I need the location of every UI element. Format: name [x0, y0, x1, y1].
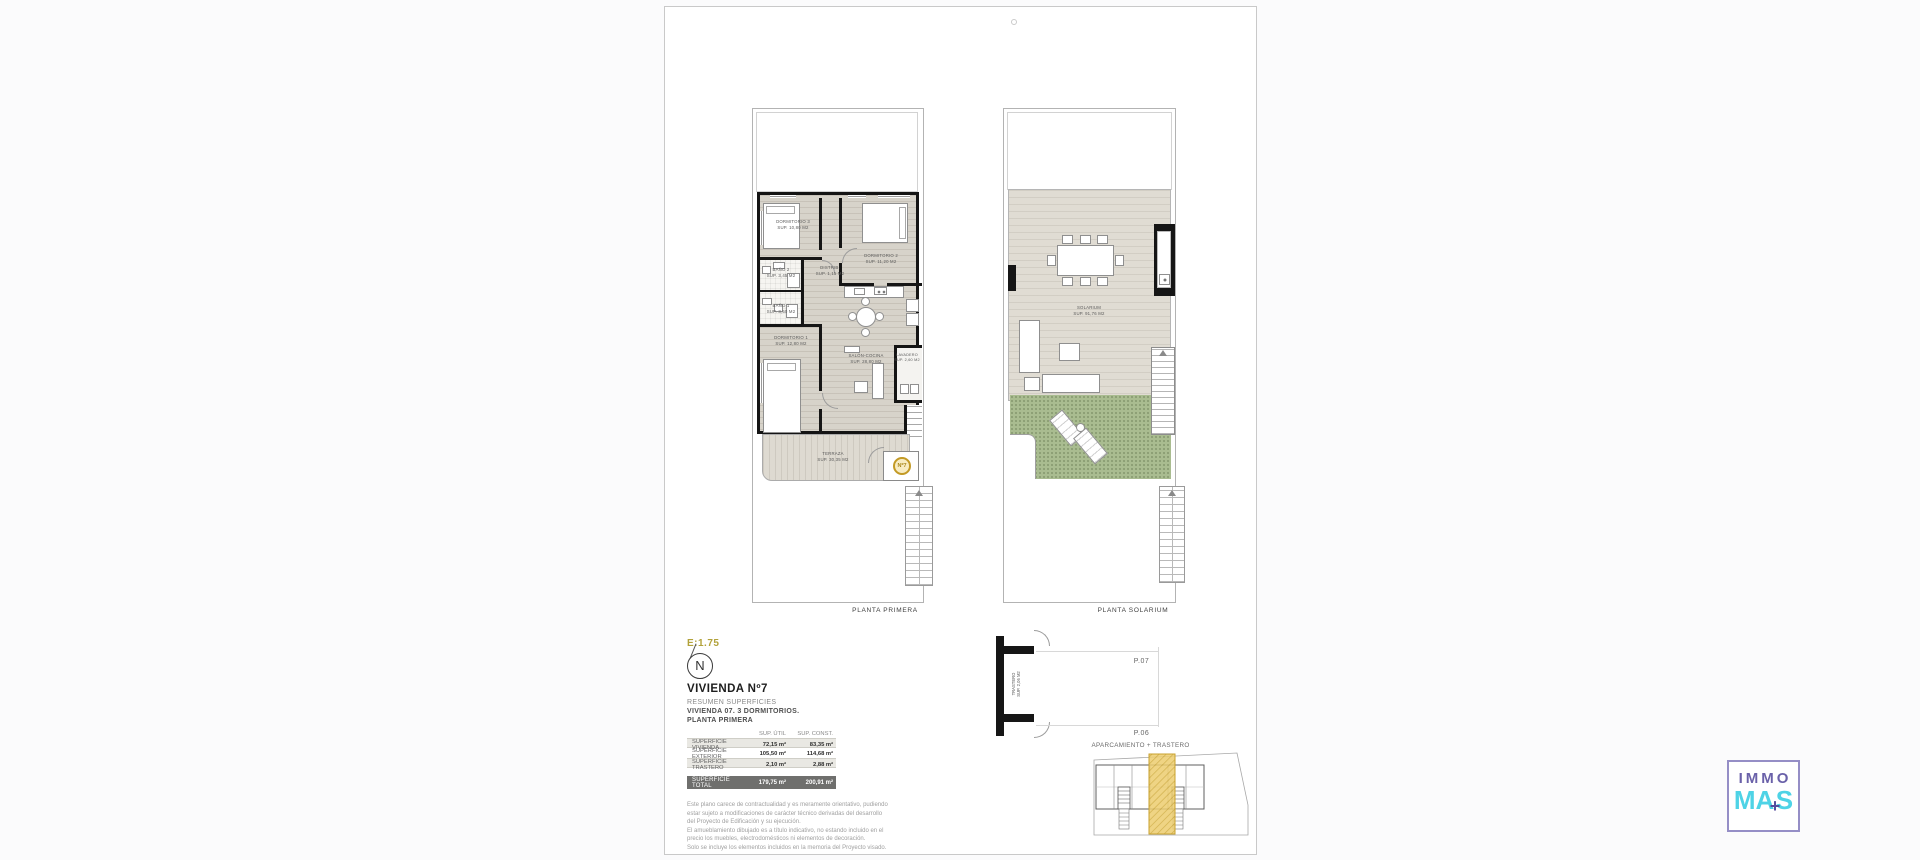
table-header: SUP. ÚTIL SUP. CONST.	[687, 729, 836, 738]
chair	[1080, 277, 1091, 286]
immomas-logo: IMMO MA+S	[1727, 760, 1800, 832]
apartment-floor: DORMITORIO 3SUP. 10,80 M2 DORMITORIO 2SU…	[757, 192, 919, 434]
room-label-dormitorio-2: DORMITORIO 2SUP. 11,20 M2	[852, 253, 910, 264]
hob	[874, 287, 887, 295]
room-label-dormitorio-1: DORMITORIO 1SUP. 12,80 M2	[764, 335, 818, 346]
oven	[906, 313, 919, 326]
chair	[1080, 235, 1091, 244]
logo-plus-icon: +	[1770, 793, 1781, 819]
page-mark	[1011, 19, 1017, 25]
door-arc	[822, 393, 838, 409]
chair	[861, 297, 870, 306]
surface-table: SUP. ÚTIL SUP. CONST. SUPERFICIE VIVIEND…	[687, 729, 836, 789]
room-label-salon-cocina: SALÓN-COCINASUP. 28,80 M2	[838, 353, 894, 364]
stair-shaft	[1151, 347, 1175, 435]
chair	[1115, 255, 1124, 266]
chair	[1047, 255, 1056, 266]
chair	[875, 312, 884, 321]
tv-unit	[844, 346, 860, 353]
up-arrow-icon	[1168, 490, 1176, 496]
room-label-terraza: TERRAZASUP. 30,35 M2	[795, 451, 871, 462]
chair	[848, 312, 857, 321]
fridge	[906, 299, 919, 312]
bed	[763, 359, 801, 433]
bed	[862, 203, 908, 243]
plan-title-solarium: PLANTA SOLARIUM	[1068, 607, 1198, 614]
exterior-stair	[1159, 486, 1185, 583]
window	[878, 195, 910, 198]
chair	[1097, 277, 1108, 286]
wall	[760, 290, 801, 292]
scale-label: E:1.75	[687, 638, 719, 649]
summary-subtitle: RESUMEN SUPERFICIES	[687, 699, 776, 706]
site-key-plan	[1091, 751, 1251, 839]
room-label-trastero: TRASTEROSUP. 2,06 M2	[1011, 661, 1023, 707]
wall	[819, 409, 822, 437]
table-row: SUPERFICIE VIVIENDA 72,15 m² 83,35 m²	[687, 738, 836, 748]
washer	[900, 384, 909, 394]
storage-wall	[996, 636, 1004, 736]
summary-floor-line: PLANTA PRIMERA	[687, 717, 753, 724]
parking-line	[1036, 651, 1159, 652]
col-sup-const: SUP. CONST.	[789, 731, 836, 737]
sofa	[1019, 320, 1040, 373]
room-label-dormitorio-3: DORMITORIO 3SUP. 10,80 M2	[768, 219, 818, 230]
disclaimer-text: Este plano carece de contractualidad y e…	[687, 801, 927, 852]
table-row: SUPERFICIE EXTERIOR 105,50 m² 114,68 m²	[687, 748, 836, 758]
window	[770, 195, 796, 198]
exterior-stair	[905, 486, 933, 586]
dining-table	[856, 307, 876, 327]
chair	[1062, 277, 1073, 286]
roof-outline	[756, 112, 918, 192]
interior-stair	[904, 405, 922, 437]
storage-wall	[1004, 646, 1034, 654]
wall	[819, 198, 822, 250]
chair	[861, 328, 870, 337]
room-label-bano-2: BAÑO 2SUP. 3,45 M2	[761, 267, 801, 278]
bbq	[1159, 274, 1170, 285]
wall	[1008, 265, 1016, 291]
window	[848, 195, 866, 198]
wall	[819, 327, 822, 391]
sofa	[872, 363, 884, 399]
plan-sheet-page: DORMITORIO 3SUP. 10,80 M2 DORMITORIO 2SU…	[664, 6, 1257, 855]
door-arc	[1034, 630, 1050, 646]
room-label-solarium: SOLARIUMSUP. 91,76 M2	[1056, 305, 1122, 316]
coffee-table	[1059, 343, 1080, 361]
north-compass-icon: N	[687, 653, 713, 679]
highlighted-unit-band	[1149, 754, 1175, 834]
table-total-row: SUPERFICIE TOTAL 179,75 m² 200,91 m²	[687, 776, 836, 789]
logo-mas-text: MA+S	[1729, 787, 1798, 816]
planta-primera-plan: DORMITORIO 3SUP. 10,80 M2 DORMITORIO 2SU…	[752, 108, 924, 603]
parking-space-p06: P.06	[1119, 730, 1164, 737]
planta-solarium-plan: SOLARIUMSUP. 91,76 M2	[1003, 108, 1176, 603]
kitchen-sink	[854, 288, 865, 295]
dryer	[910, 384, 919, 394]
up-arrow-icon	[1159, 350, 1167, 356]
roof-outline	[1007, 112, 1172, 190]
chair	[1097, 235, 1108, 244]
page-title: VIVIENDA Nº7	[687, 683, 768, 695]
round-table	[1076, 423, 1085, 432]
armchair	[854, 381, 868, 393]
summary-unit-line: VIVIENDA 07. 3 DORMITORIOS.	[687, 708, 799, 715]
storage-wall	[1004, 714, 1034, 722]
walkway-notch	[1010, 434, 1036, 479]
table-row: SUPERFICIE TRASTERO 2,10 m² 2,88 m²	[687, 758, 836, 768]
parking-line	[1036, 725, 1159, 726]
unit-number-badge: Nº7	[893, 457, 911, 475]
parking-space-p07: P.07	[1119, 658, 1164, 665]
entry-porch: Nº7	[883, 451, 919, 481]
sun-lounger	[1073, 428, 1108, 465]
sofa	[1042, 374, 1100, 393]
room-label-bano-1: BAÑO 1SUP. 3,50 M2	[761, 303, 801, 314]
lawn-area	[1010, 395, 1171, 479]
plan-title-primera: PLANTA PRIMERA	[820, 607, 950, 614]
outdoor-table	[1057, 245, 1114, 276]
room-label-distrib: DISTRIB.SUP. 1,15 M2	[812, 265, 848, 276]
chair	[1062, 235, 1073, 244]
col-sup-util: SUP. ÚTIL	[744, 731, 789, 737]
stair-core	[1118, 787, 1130, 809]
logo-immo-text: IMMO	[1729, 771, 1798, 786]
exterior-stair-small	[1119, 809, 1129, 829]
site-plan-title: APARCAMIENTO + TRASTERO	[1078, 742, 1203, 749]
up-arrow-icon	[915, 490, 923, 496]
wall	[839, 198, 842, 248]
room-label-lavadero: LAVADEROSUP. 2,60 M2	[894, 353, 920, 363]
side-table	[1024, 377, 1040, 391]
